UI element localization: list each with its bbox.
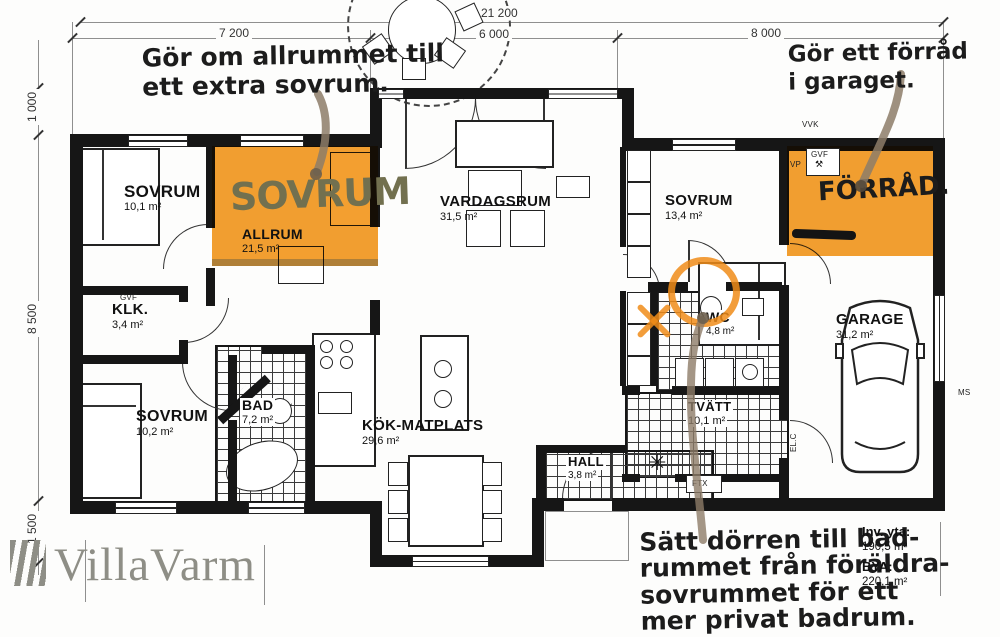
room-label-garage: GARAGE 31,2 m² [836, 312, 904, 341]
wall [206, 268, 215, 306]
wardrobe-icon [627, 214, 651, 246]
ms-label: MS [958, 388, 970, 397]
wall [532, 508, 544, 567]
patio-door-leaf [405, 98, 407, 168]
dryer-icon [705, 358, 734, 387]
wall [622, 386, 640, 395]
highlight-circle-door [668, 257, 740, 327]
vent-star-icon: ✳ [648, 450, 666, 476]
extension-line [264, 545, 265, 605]
window [248, 502, 305, 514]
room-label-kok: KÖK-MATPLATS 29,6 m² [362, 418, 483, 447]
area-totals: Inv. yta: 190,5 m² BYA: 220,1 m² [862, 524, 952, 593]
wall [179, 286, 188, 302]
inv-yta-label: Inv. yta: [862, 524, 952, 540]
wardrobe-icon [627, 356, 651, 386]
gvf-unit-box: GVF ⚒ [806, 148, 840, 176]
stove-burner-icon [320, 356, 333, 369]
room-label-tvatt: TVÄTT 10,1 m² [686, 400, 733, 427]
bed-icon [80, 383, 142, 499]
dim-seg-right: 8 000 [748, 26, 784, 40]
chair-icon [388, 518, 408, 542]
floor-plan: 21 200 7 200 6 000 8 000 1 000 8 500 1 5… [0, 0, 1000, 637]
entrance-door-leaf [610, 448, 612, 500]
window [128, 135, 188, 147]
wall [779, 285, 789, 420]
elc-label: EL.C [789, 433, 798, 452]
dim-v-top: 1 000 [25, 89, 39, 125]
overlay-word-sovrum: SOVRUM [229, 169, 410, 219]
brand-watermark: VillaVarm [10, 540, 256, 586]
window [548, 89, 618, 99]
room-label-vardagsrum: VARDAGSRUM 31,5 m² [440, 194, 551, 223]
chair-icon [388, 462, 408, 486]
sink-bowl-icon [434, 390, 452, 408]
dimension-line-total [80, 22, 943, 23]
dim-v-mid: 8 500 [25, 301, 39, 337]
inv-yta-value: 190,5 m² [862, 540, 952, 554]
room-label-klk: KLK. 3,4 m² [112, 302, 148, 331]
wall [306, 345, 315, 503]
sofa-icon [455, 120, 554, 168]
bedroom1-door-arc [163, 224, 208, 269]
room-label-allrum: ALLRUM 21,5 m² [242, 227, 303, 255]
gvf-label-klk: GVF [120, 293, 137, 302]
chair-icon [482, 518, 502, 542]
wall [70, 355, 182, 364]
ftx-label: FTX [692, 479, 708, 488]
garage-door-opening [934, 295, 945, 382]
wardrobe-icon [627, 150, 651, 182]
sink-icon [742, 298, 764, 316]
chair-icon [388, 490, 408, 514]
gvf-label-forrad: GVF [811, 150, 828, 159]
stove-burner-icon [340, 356, 353, 369]
vp-label: VP [790, 160, 801, 169]
wall [70, 134, 83, 514]
wall [620, 147, 626, 247]
room-label-sovrum1: SOVRUM 10,1 m² [124, 182, 200, 213]
window [412, 556, 489, 567]
sink-bowl-icon [434, 360, 452, 378]
gvf-symbol-icon: ⚒ [815, 159, 823, 170]
chair-icon [482, 462, 502, 486]
bya-value: 220,1 m² [862, 575, 952, 589]
wardrobe-icon [627, 246, 651, 278]
dim-seg-mid: 6 000 [476, 27, 512, 41]
dim-total: 21 200 [478, 6, 521, 20]
window [115, 502, 177, 514]
porch-line [628, 511, 629, 561]
chair-icon [482, 490, 502, 514]
annotation-make-storage: Gör ett förråd i garaget. [788, 38, 969, 96]
wall [779, 458, 789, 511]
porch-line [545, 560, 629, 561]
wall [622, 474, 640, 482]
window [672, 139, 736, 151]
room-label-sovrum2: SOVRUM 13,4 m² [665, 193, 733, 222]
brand-logo-icon [10, 540, 46, 586]
wardrobe-icon [627, 182, 651, 214]
sink-icon [318, 392, 352, 414]
annotation-make-bedroom: Gör om allrummet till ett extra sovrum. [142, 39, 445, 102]
wall [620, 291, 626, 386]
bya-label: BYA: [862, 559, 952, 575]
brand-name: VillaVarm [54, 544, 256, 586]
stove-burner-icon [320, 340, 333, 353]
porch-line [545, 511, 546, 561]
wall [672, 386, 782, 395]
porch-line [545, 511, 629, 512]
tv-bench-icon [556, 176, 590, 198]
wall [536, 445, 626, 453]
washer-icon [675, 358, 704, 387]
bed-pillow-line [102, 150, 104, 240]
bedroom3-door-arc [182, 362, 231, 411]
dim-seg-left: 7 200 [216, 26, 252, 40]
stove-burner-icon [340, 340, 353, 353]
wall [536, 445, 544, 500]
room-label-hall: HALL 3,8 m² [566, 455, 606, 481]
dining-table-icon [408, 455, 484, 547]
vvk-label: VVK [802, 120, 819, 129]
room-label-sovrum3: SOVRUM 10,2 m² [136, 408, 208, 438]
room-label-bad: BAD 7,2 m² [240, 398, 275, 426]
wall [370, 300, 380, 335]
clock-symbol-icon [742, 364, 758, 380]
wall [228, 420, 237, 503]
bed-pillow-line [82, 405, 136, 407]
